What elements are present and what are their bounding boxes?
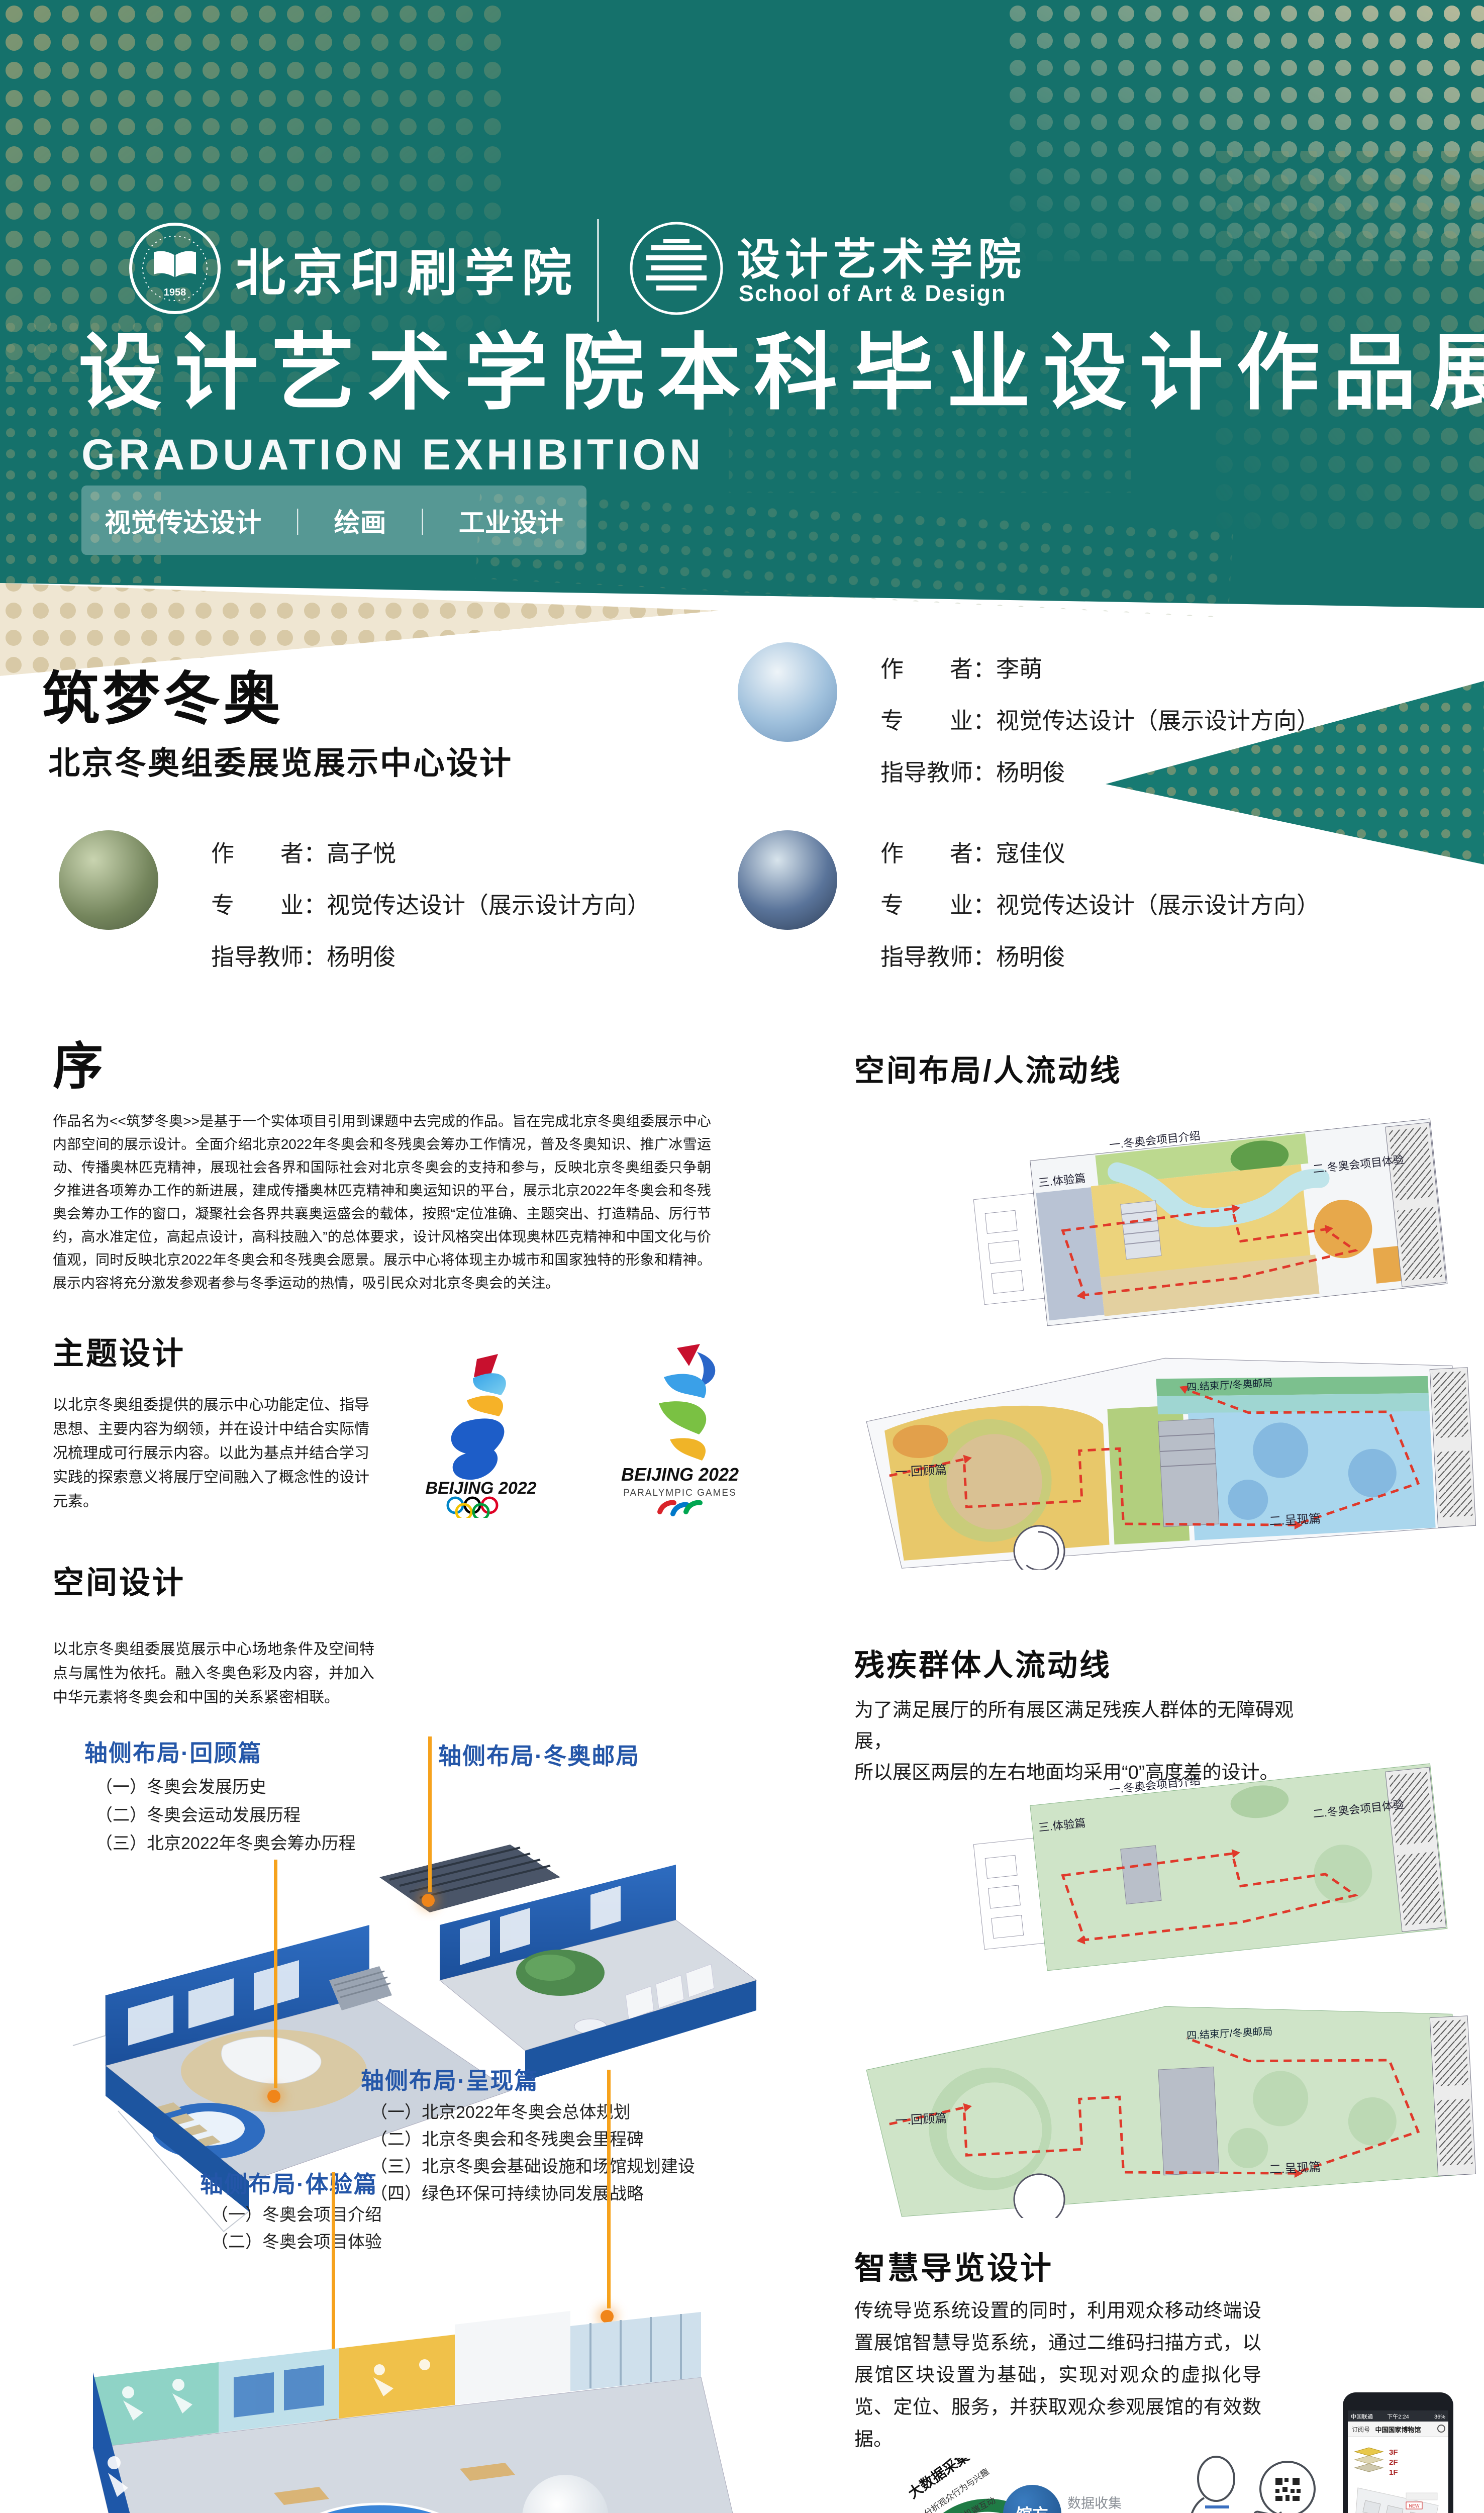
author-card-gaoziyue: 作 者：高子悦 专 业：视觉传达设计（展示设计方向） 指导教师：杨明俊 [211, 835, 650, 972]
floorplan-1f-accessible: 一.回顾篇 二.呈现篇 四.结束厅/冬奥邮局 [838, 1979, 1484, 2218]
phone-app-title: 中国国家博物馆 [1375, 2426, 1421, 2434]
author-major-row: 专 业：视觉传达设计（展示设计方向） [880, 887, 1320, 920]
smart-guide-cycle-diagram: 馆方 观众 展览 数据收集 网络管理 社交网络 分享传播 展览上网 在线传播 大… [837, 2458, 1149, 2513]
zone-label: 一.回顾篇 [895, 2111, 947, 2128]
wall-yellow [339, 2335, 455, 2419]
list-item: （一）冬奥会项目介绍 [211, 2201, 382, 2229]
major-tagbar: 视觉传达设计 ｜ 绘画 ｜ 工业设计 [81, 486, 586, 555]
map-badge: NEW [1409, 2503, 1420, 2508]
author-advisor-label: 指导教师： [880, 759, 996, 786]
space-design-heading: 空间设计 [53, 1557, 185, 1602]
school-name-en: School of Art & Design [739, 280, 1006, 307]
olympic-wordmark: BEIJING 2022 [425, 1479, 536, 1498]
school-seal [627, 219, 726, 318]
floor-stack-icon [1355, 2448, 1383, 2472]
wall-white [455, 2311, 570, 2405]
author-advisor-row: 指导教师：杨明俊 [211, 939, 650, 972]
wall-mint [93, 2362, 219, 2448]
orange-guide-line [607, 2070, 611, 2308]
avatar-koujiayi [738, 830, 837, 930]
axon-label-experience: 轴侧布局·体验篇 [200, 2166, 377, 2199]
list-item: （二）冬奥会运动发展历程 [95, 1801, 356, 1829]
list-item: （三）北京冬奥会基础设施和场馆规划建设 [370, 2153, 695, 2180]
exhibition-subtitle: GRADUATION EXHIBITION [81, 430, 705, 480]
axon-label-postoffice: 轴侧布局·冬奥邮局 [438, 1738, 640, 1771]
bigc-seal: 1958 [127, 220, 223, 317]
author-major: 视觉传达设计（展示设计方向） [996, 708, 1320, 734]
author-major: 视觉传达设计（展示设计方向） [996, 892, 1320, 918]
seal-year: 1958 [164, 287, 186, 298]
qr-scan-illustration [1156, 2448, 1322, 2513]
phone-back: 订阅号 [1352, 2426, 1370, 2433]
author-advisor-label: 指导教师： [880, 944, 996, 970]
olympic-rings [448, 1498, 497, 1518]
author-advisor-row: 指导教师：杨明俊 [880, 939, 1320, 972]
phone-time: 下午2:24 [1387, 2413, 1409, 2420]
author-major-label: 专 业： [880, 892, 996, 918]
theme-body: 以北京冬奥组委提供的展示中心功能定位、指导思想、主要内容为纲领，并在设计中结合实… [53, 1393, 369, 1514]
guide-app-phone: 中国联通 下午2:24 36% 订阅号 中国国家博物馆 3F 2F 1F NEW… [1343, 2392, 1453, 2513]
author-name: 高子悦 [327, 840, 396, 866]
paralympic-sub: PARALYMPIC GAMES [623, 1488, 737, 1498]
author-card-limeng: 作 者：李萌 专 业：视觉传达设计（展示设计方向） 指导教师：杨明俊 [880, 651, 1320, 788]
axon-render-experience [58, 2282, 784, 2513]
floorplan-1f-colored: 一.回顾篇 二.呈现篇 四.结束厅/冬奥邮局 [838, 1331, 1484, 1570]
floor-3f: 3F [1389, 2448, 1398, 2457]
list-item: （一）北京2022年冬奥会总体规划 [370, 2099, 695, 2126]
floor-1f: 1F [1389, 2468, 1398, 2477]
author-name: 李萌 [996, 656, 1042, 682]
university-name: 北京印刷学院 [235, 232, 579, 305]
author-name-row: 作 者：李萌 [880, 651, 1320, 684]
zone-label: 一.回顾篇 [895, 1463, 947, 1479]
orange-guide-dot [422, 1894, 435, 1907]
logo-divider [597, 219, 599, 322]
preface-heading: 序 [53, 1025, 105, 1098]
author-major-row: 专 业：视觉传达设计（展示设计方向） [211, 887, 650, 920]
preface-body: 作品名为<<筑梦冬奥>>是基于一个实体项目引用到课题中去完成的作品。旨在完成北京… [53, 1110, 711, 1295]
tag-industrial-design: 工业设计 [459, 502, 563, 539]
avatar-gaoziyue [59, 830, 158, 930]
node-museum-label: 馆方 [1016, 2505, 1048, 2513]
axon-label-review: 轴侧布局·回顾篇 [84, 1735, 262, 1768]
author-advisor-row: 指导教师：杨明俊 [880, 754, 1320, 788]
zone-label: 二.呈现篇 [1269, 2160, 1321, 2176]
axon-list-review: （一）冬奥会发展历史 （二）冬奥会运动发展历程 （三）北京2022年冬奥会筹办历… [95, 1773, 356, 1858]
beijing2022-paralympic-emblem: BEIJING 2022 PARALYMPIC GAMES [606, 1341, 751, 1518]
orange-guide-dot [267, 2090, 280, 2103]
emblem-ribbon-blue [451, 1418, 505, 1480]
author-major-label: 专 业： [880, 708, 996, 734]
author-name: 寇佳仪 [996, 840, 1065, 866]
axon-list-presentation: （一）北京2022年冬奥会总体规划 （二）北京冬奥会和冬残奥会里程碑 （三）北京… [370, 2099, 695, 2207]
paralympic-wordmark: BEIJING 2022 [621, 1464, 739, 1485]
author-role-label: 作 者： [880, 840, 996, 866]
arc-label: 大数据采集 [906, 2458, 972, 2501]
tag-painting: 绘画 [334, 502, 386, 539]
tag-separator: ｜ [410, 502, 436, 539]
floorplan-2f-accessible: 一.冬奥会项目介绍 二.冬奥会项目体验 三.体验篇 [972, 1758, 1482, 1979]
phone-battery: 36% [1434, 2414, 1445, 2420]
tag-separator: ｜ [284, 502, 311, 539]
floor-2f: 2F [1389, 2458, 1398, 2467]
seal-pattern [646, 239, 707, 291]
zone-label: 二.呈现篇 [1269, 1512, 1321, 1528]
accessible-heading: 残疾群体人流动线 [854, 1641, 1112, 1685]
author-role-label: 作 者： [211, 840, 327, 866]
smart-guide-heading: 智慧导览设计 [854, 2243, 1053, 2288]
accessible-line1: 为了满足展厅的所有展区满足残疾人群体的无障碍观展， [854, 1695, 1307, 1757]
exhibition-title: 设计艺术学院本科毕业设计作品展 [78, 326, 1484, 422]
list-item: （一）冬奥会发展历史 [95, 1773, 356, 1801]
author-advisor: 杨明俊 [327, 944, 396, 970]
author-name-row: 作 者：寇佳仪 [880, 835, 1320, 868]
list-item: （四）绿色环保可持续协同发展战略 [370, 2180, 695, 2207]
axon-label-presentation: 轴侧布局·呈现篇 [361, 2063, 538, 2096]
author-advisor: 杨明俊 [996, 944, 1065, 970]
list-item: （三）北京2022年冬奥会筹办历程 [95, 1829, 356, 1858]
orange-guide-line [428, 1736, 432, 1892]
beijing2022-olympic-emblem: BEIJING 2022 [425, 1352, 540, 1518]
project-subtitle: 北京冬奥组委展览展示中心设计 [48, 738, 513, 784]
paralympic-agitos [660, 1503, 700, 1514]
theme-heading: 主题设计 [53, 1328, 185, 1373]
avatar-limeng [738, 642, 837, 742]
floorplan-2f-colored: 一.冬奥会项目介绍 二.冬奥会项目体验 三.体验篇 [972, 1113, 1482, 1334]
author-role-label: 作 者： [880, 656, 996, 682]
list-item: （二）冬奥会项目体验 [211, 2229, 382, 2256]
school-name-cn: 设计艺术学院 [737, 224, 1026, 287]
list-item: （二）北京冬奥会和冬残奥会里程碑 [370, 2126, 695, 2153]
author-advisor-label: 指导教师： [211, 944, 327, 970]
graduation-poster: 1958 北京印刷学院 设计艺术学院 School of Art & Desig… [0, 0, 1484, 2513]
project-title: 筑梦冬奥 [42, 652, 283, 735]
museum-side-label1: 数据收集 [1067, 2496, 1122, 2511]
author-advisor: 杨明俊 [996, 759, 1065, 786]
author-major-row: 专 业：视觉传达设计（展示设计方向） [880, 703, 1320, 736]
author-name-row: 作 者：高子悦 [211, 835, 650, 868]
author-major: 视觉传达设计（展示设计方向） [327, 892, 650, 918]
author-major-label: 专 业： [211, 892, 327, 918]
smart-guide-body: 传统导览系统设置的同时，利用观众移动终端设置展馆智慧导览系统，通过二维码扫描方式… [854, 2295, 1261, 2456]
space-design-body: 以北京冬奥组委展览展示中心场地条件及空间特点与属性为依托。融入冬奥色彩及内容，并… [53, 1637, 374, 1710]
flow-heading: 空间布局/人流动线 [854, 1046, 1122, 1090]
author-card-koujiayi: 作 者：寇佳仪 专 业：视觉传达设计（展示设计方向） 指导教师：杨明俊 [880, 835, 1320, 972]
person-head [1198, 2457, 1234, 2501]
orange-guide-line [274, 1860, 277, 2088]
tag-visual-design: 视觉传达设计 [105, 502, 261, 539]
axon-list-experience: （一）冬奥会项目介绍 （二）冬奥会项目体验 [211, 2201, 382, 2256]
phone-carrier: 中国联通 [1351, 2413, 1373, 2420]
